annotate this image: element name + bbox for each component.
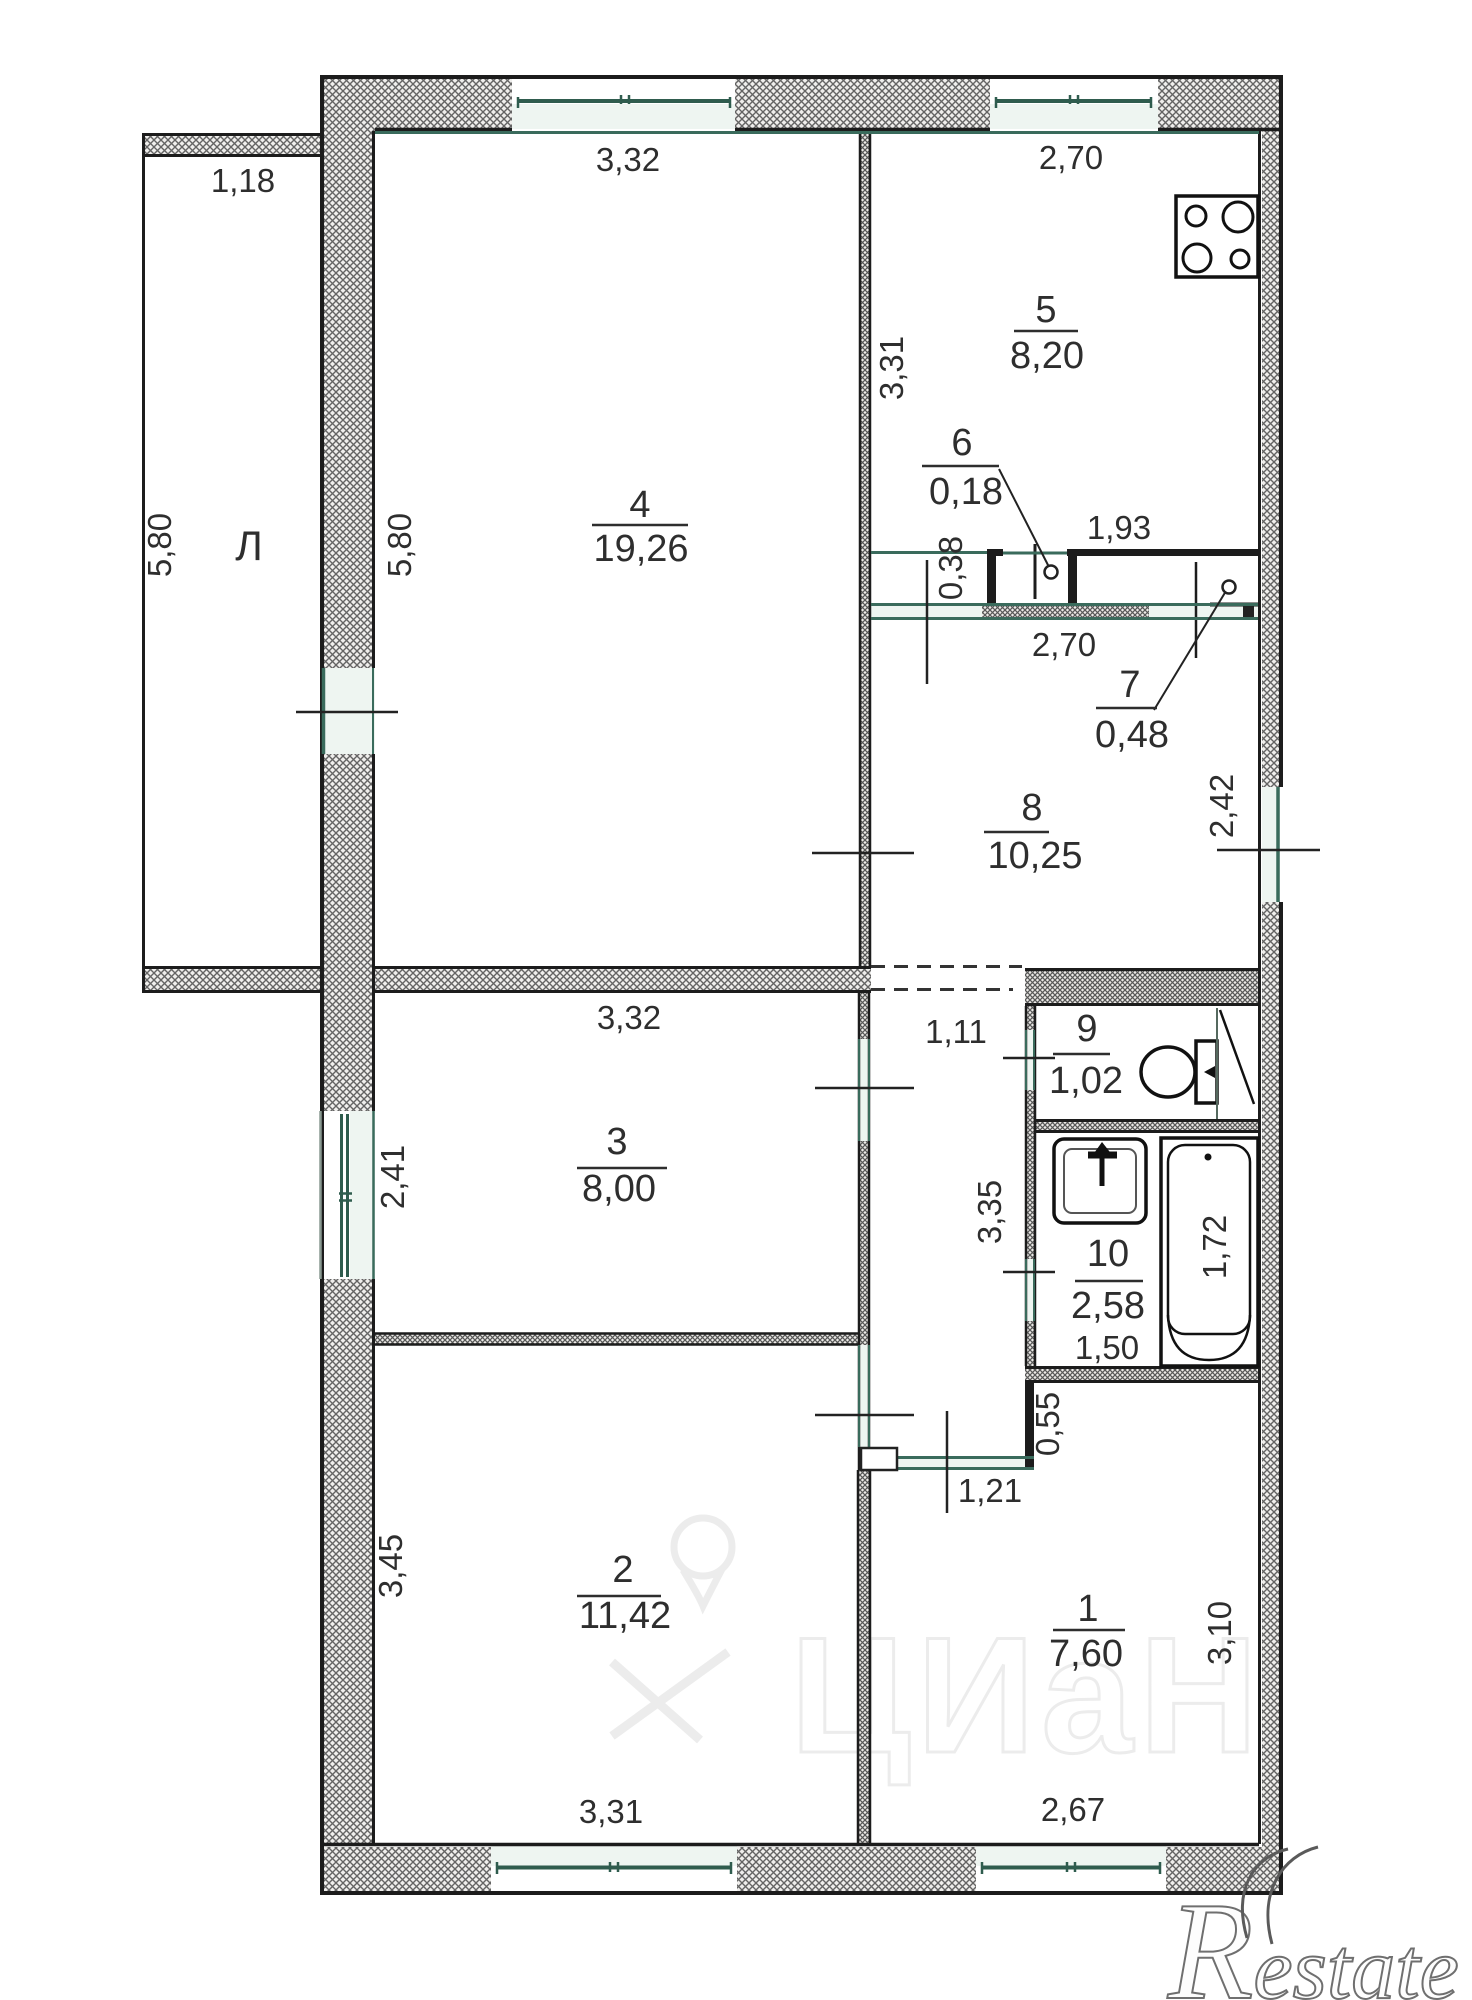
svg-text:3,35: 3,35 — [971, 1180, 1008, 1244]
svg-text:5,80: 5,80 — [381, 513, 418, 577]
svg-text:2,41: 2,41 — [374, 1145, 411, 1209]
svg-text:1,21: 1,21 — [958, 1472, 1022, 1509]
svg-text:8: 8 — [1021, 787, 1042, 829]
svg-text:8,00: 8,00 — [582, 1168, 656, 1210]
svg-text:8,20: 8,20 — [1010, 335, 1084, 377]
svg-text:Л: Л — [235, 522, 263, 569]
svg-text:5,80: 5,80 — [141, 513, 178, 577]
svg-text:5: 5 — [1035, 289, 1056, 331]
svg-text:1,02: 1,02 — [1049, 1060, 1123, 1102]
svg-text:6: 6 — [951, 422, 972, 464]
svg-text:3,10: 3,10 — [1201, 1601, 1238, 1665]
svg-text:3,32: 3,32 — [597, 999, 661, 1036]
svg-text:3,31: 3,31 — [579, 1793, 643, 1830]
svg-text:2,58: 2,58 — [1071, 1285, 1145, 1327]
svg-text:3,31: 3,31 — [873, 336, 910, 400]
svg-text:2,70: 2,70 — [1032, 626, 1096, 663]
svg-text:10,25: 10,25 — [987, 835, 1082, 877]
svg-text:0,18: 0,18 — [929, 471, 1003, 513]
svg-text:7,60: 7,60 — [1049, 1633, 1123, 1675]
svg-text:1: 1 — [1077, 1588, 1098, 1630]
svg-text:2,70: 2,70 — [1039, 139, 1103, 176]
svg-text:11,42: 11,42 — [579, 1595, 671, 1637]
svg-text:9: 9 — [1076, 1008, 1097, 1050]
svg-text:2,42: 2,42 — [1203, 774, 1240, 838]
svg-text:10: 10 — [1087, 1233, 1129, 1275]
svg-text:1,50: 1,50 — [1075, 1329, 1139, 1366]
svg-text:4: 4 — [629, 484, 650, 526]
svg-text:1,18: 1,18 — [211, 162, 275, 199]
svg-text:1,93: 1,93 — [1087, 509, 1151, 546]
svg-text:0,55: 0,55 — [1029, 1392, 1066, 1456]
svg-text:3: 3 — [606, 1121, 627, 1163]
svg-text:19,26: 19,26 — [593, 528, 688, 570]
svg-text:2,67: 2,67 — [1041, 1791, 1105, 1828]
svg-text:1,72: 1,72 — [1196, 1215, 1233, 1279]
svg-text:0,38: 0,38 — [932, 536, 969, 600]
svg-text:7: 7 — [1119, 664, 1140, 706]
svg-text:0,48: 0,48 — [1095, 714, 1169, 756]
svg-text:2: 2 — [612, 1549, 633, 1591]
svg-text:3,32: 3,32 — [596, 141, 660, 178]
svg-text:3,45: 3,45 — [372, 1534, 409, 1598]
svg-text:1,11: 1,11 — [925, 1013, 987, 1050]
